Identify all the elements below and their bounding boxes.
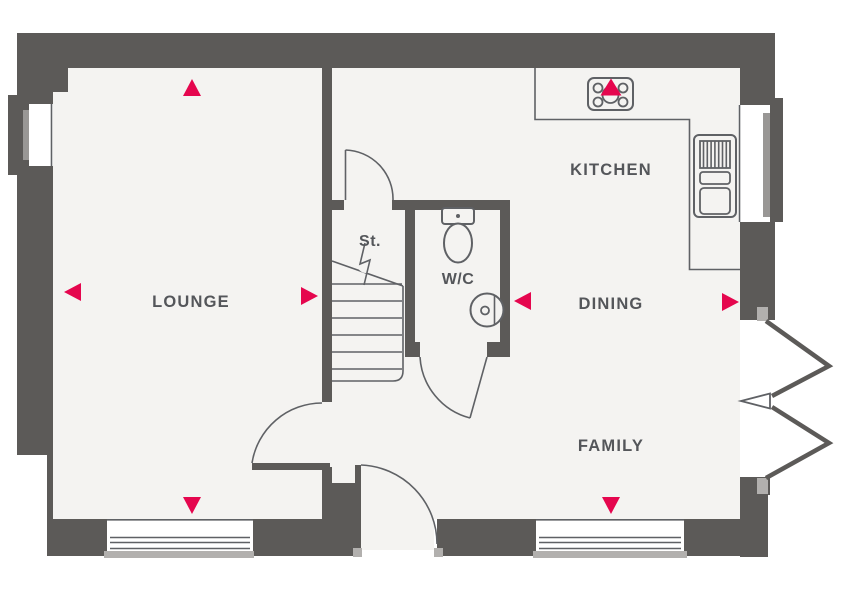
window-lounge-south [104, 519, 254, 558]
wall-west-pier [8, 95, 17, 175]
wall-nw-step [53, 68, 68, 92]
window-family-south [533, 519, 687, 558]
french-doors-icon [741, 307, 829, 494]
basin-icon [471, 294, 504, 327]
window-glass [107, 519, 253, 552]
window-glass [536, 519, 684, 552]
floor-plan-drawing: LOUNGE KITCHEN DINING FAMILY W/C St. [0, 0, 842, 596]
wall-south-c [437, 519, 536, 556]
wall-east-top [740, 68, 775, 105]
wall-wc-west [405, 210, 415, 342]
toilet-button [456, 214, 460, 218]
room-label-family: FAMILY [578, 437, 644, 455]
door-jamb [353, 548, 362, 557]
floor-plan: LOUNGE KITCHEN DINING FAMILY W/C St. [0, 0, 842, 596]
room-label-lounge: LOUNGE [152, 293, 230, 311]
window-sill [23, 110, 30, 160]
door-jamb [757, 307, 768, 321]
wall-front-door-pier [332, 483, 355, 521]
wall-east-window-pier [770, 98, 783, 222]
door-leaf [252, 463, 330, 470]
window-sill [533, 551, 687, 558]
wall-lounge-east-lower [322, 467, 332, 521]
wall-lounge-east-upper [322, 68, 332, 402]
room-label-store: St. [359, 233, 381, 250]
toilet-icon [442, 208, 474, 263]
room-label-wc: W/C [442, 271, 475, 288]
wall-south-b [253, 519, 355, 556]
wall-west-lower [47, 455, 53, 519]
basin-bowl [471, 294, 504, 327]
door-jamb [434, 548, 443, 557]
wall-east-bottom [740, 495, 768, 557]
wall-store-door-stub [332, 200, 344, 210]
window-glass [738, 105, 763, 222]
room-label-dining: DINING [579, 295, 644, 313]
open-plan-floor [332, 68, 740, 519]
wall-wc-se-stub [487, 342, 510, 357]
window-lounge-west [23, 104, 53, 166]
appliance-icon [694, 135, 736, 217]
window-glass [29, 104, 53, 166]
toilet-bowl [444, 224, 472, 263]
wall-wc-sw-stub [405, 342, 420, 357]
french-doors-open-lines [766, 321, 829, 478]
wall-south-a [47, 519, 107, 556]
opening-direction-icon [741, 394, 770, 409]
window-kitchen-east [738, 105, 770, 222]
front-door-threshold [361, 519, 434, 550]
window-sill [763, 113, 770, 217]
wall-wc-east [500, 210, 510, 342]
door-jamb [757, 478, 768, 494]
window-sill [104, 551, 254, 558]
door-leaf [355, 465, 361, 548]
wall-north [17, 33, 775, 68]
room-label-kitchen: KITCHEN [570, 161, 652, 179]
